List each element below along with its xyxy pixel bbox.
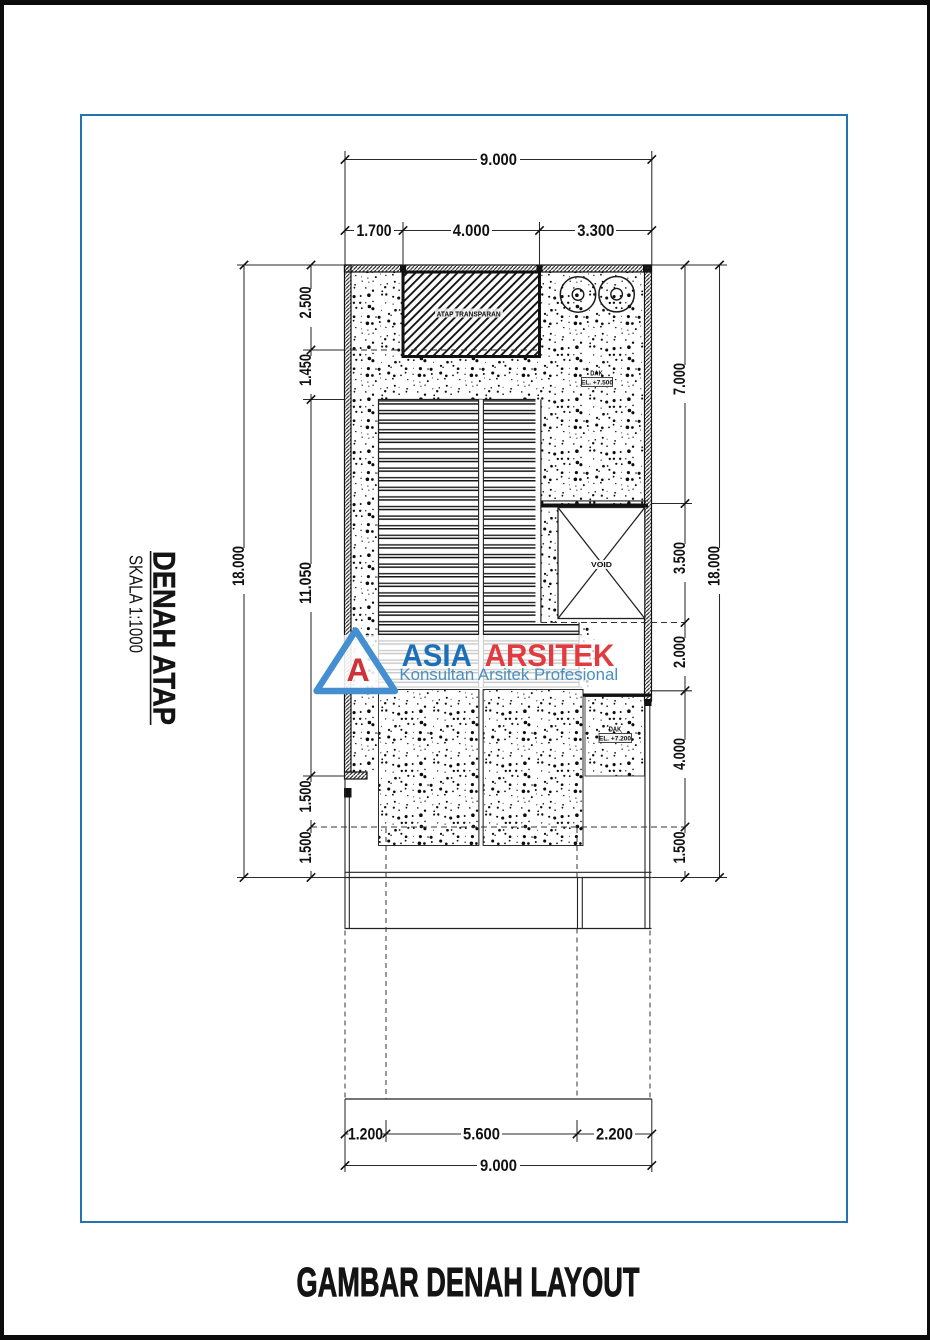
- svg-text:ATAP TRANSPARAN: ATAP TRANSPARAN: [437, 310, 501, 319]
- svg-text:1.500: 1.500: [297, 781, 315, 813]
- svg-text:2.500: 2.500: [297, 287, 315, 319]
- svg-text:2.200: 2.200: [596, 1126, 633, 1144]
- svg-text:4.000: 4.000: [671, 738, 689, 770]
- svg-text:5.600: 5.600: [463, 1126, 500, 1144]
- svg-text:1.700: 1.700: [357, 222, 392, 240]
- svg-text:EL. +7.500: EL. +7.500: [581, 380, 613, 387]
- svg-text:1.500: 1.500: [297, 832, 315, 864]
- svg-text:3.300: 3.300: [577, 222, 614, 240]
- svg-text:DAK: DAK: [609, 727, 622, 734]
- svg-text:3.500: 3.500: [671, 542, 689, 574]
- svg-text:2.000: 2.000: [671, 636, 689, 668]
- svg-text:Konsultan Arsitek Profesional: Konsultan Arsitek Profesional: [399, 666, 618, 684]
- svg-text:A: A: [346, 652, 369, 688]
- svg-text:9.000: 9.000: [480, 1157, 517, 1175]
- svg-text:1.500: 1.500: [671, 832, 689, 864]
- svg-text:11.050: 11.050: [297, 562, 315, 604]
- svg-text:4.000: 4.000: [453, 222, 490, 240]
- svg-text:18.000: 18.000: [230, 546, 248, 586]
- svg-text:18.000: 18.000: [706, 546, 724, 586]
- svg-text:DAK: DAK: [590, 371, 603, 378]
- svg-text:1.200: 1.200: [348, 1126, 383, 1144]
- svg-text:EL. +7.200: EL. +7.200: [599, 736, 631, 743]
- svg-text:9.000: 9.000: [480, 151, 517, 169]
- svg-text:VOID: VOID: [591, 560, 613, 569]
- svg-text:1.450: 1.450: [297, 354, 315, 386]
- svg-text:7.000: 7.000: [671, 363, 689, 395]
